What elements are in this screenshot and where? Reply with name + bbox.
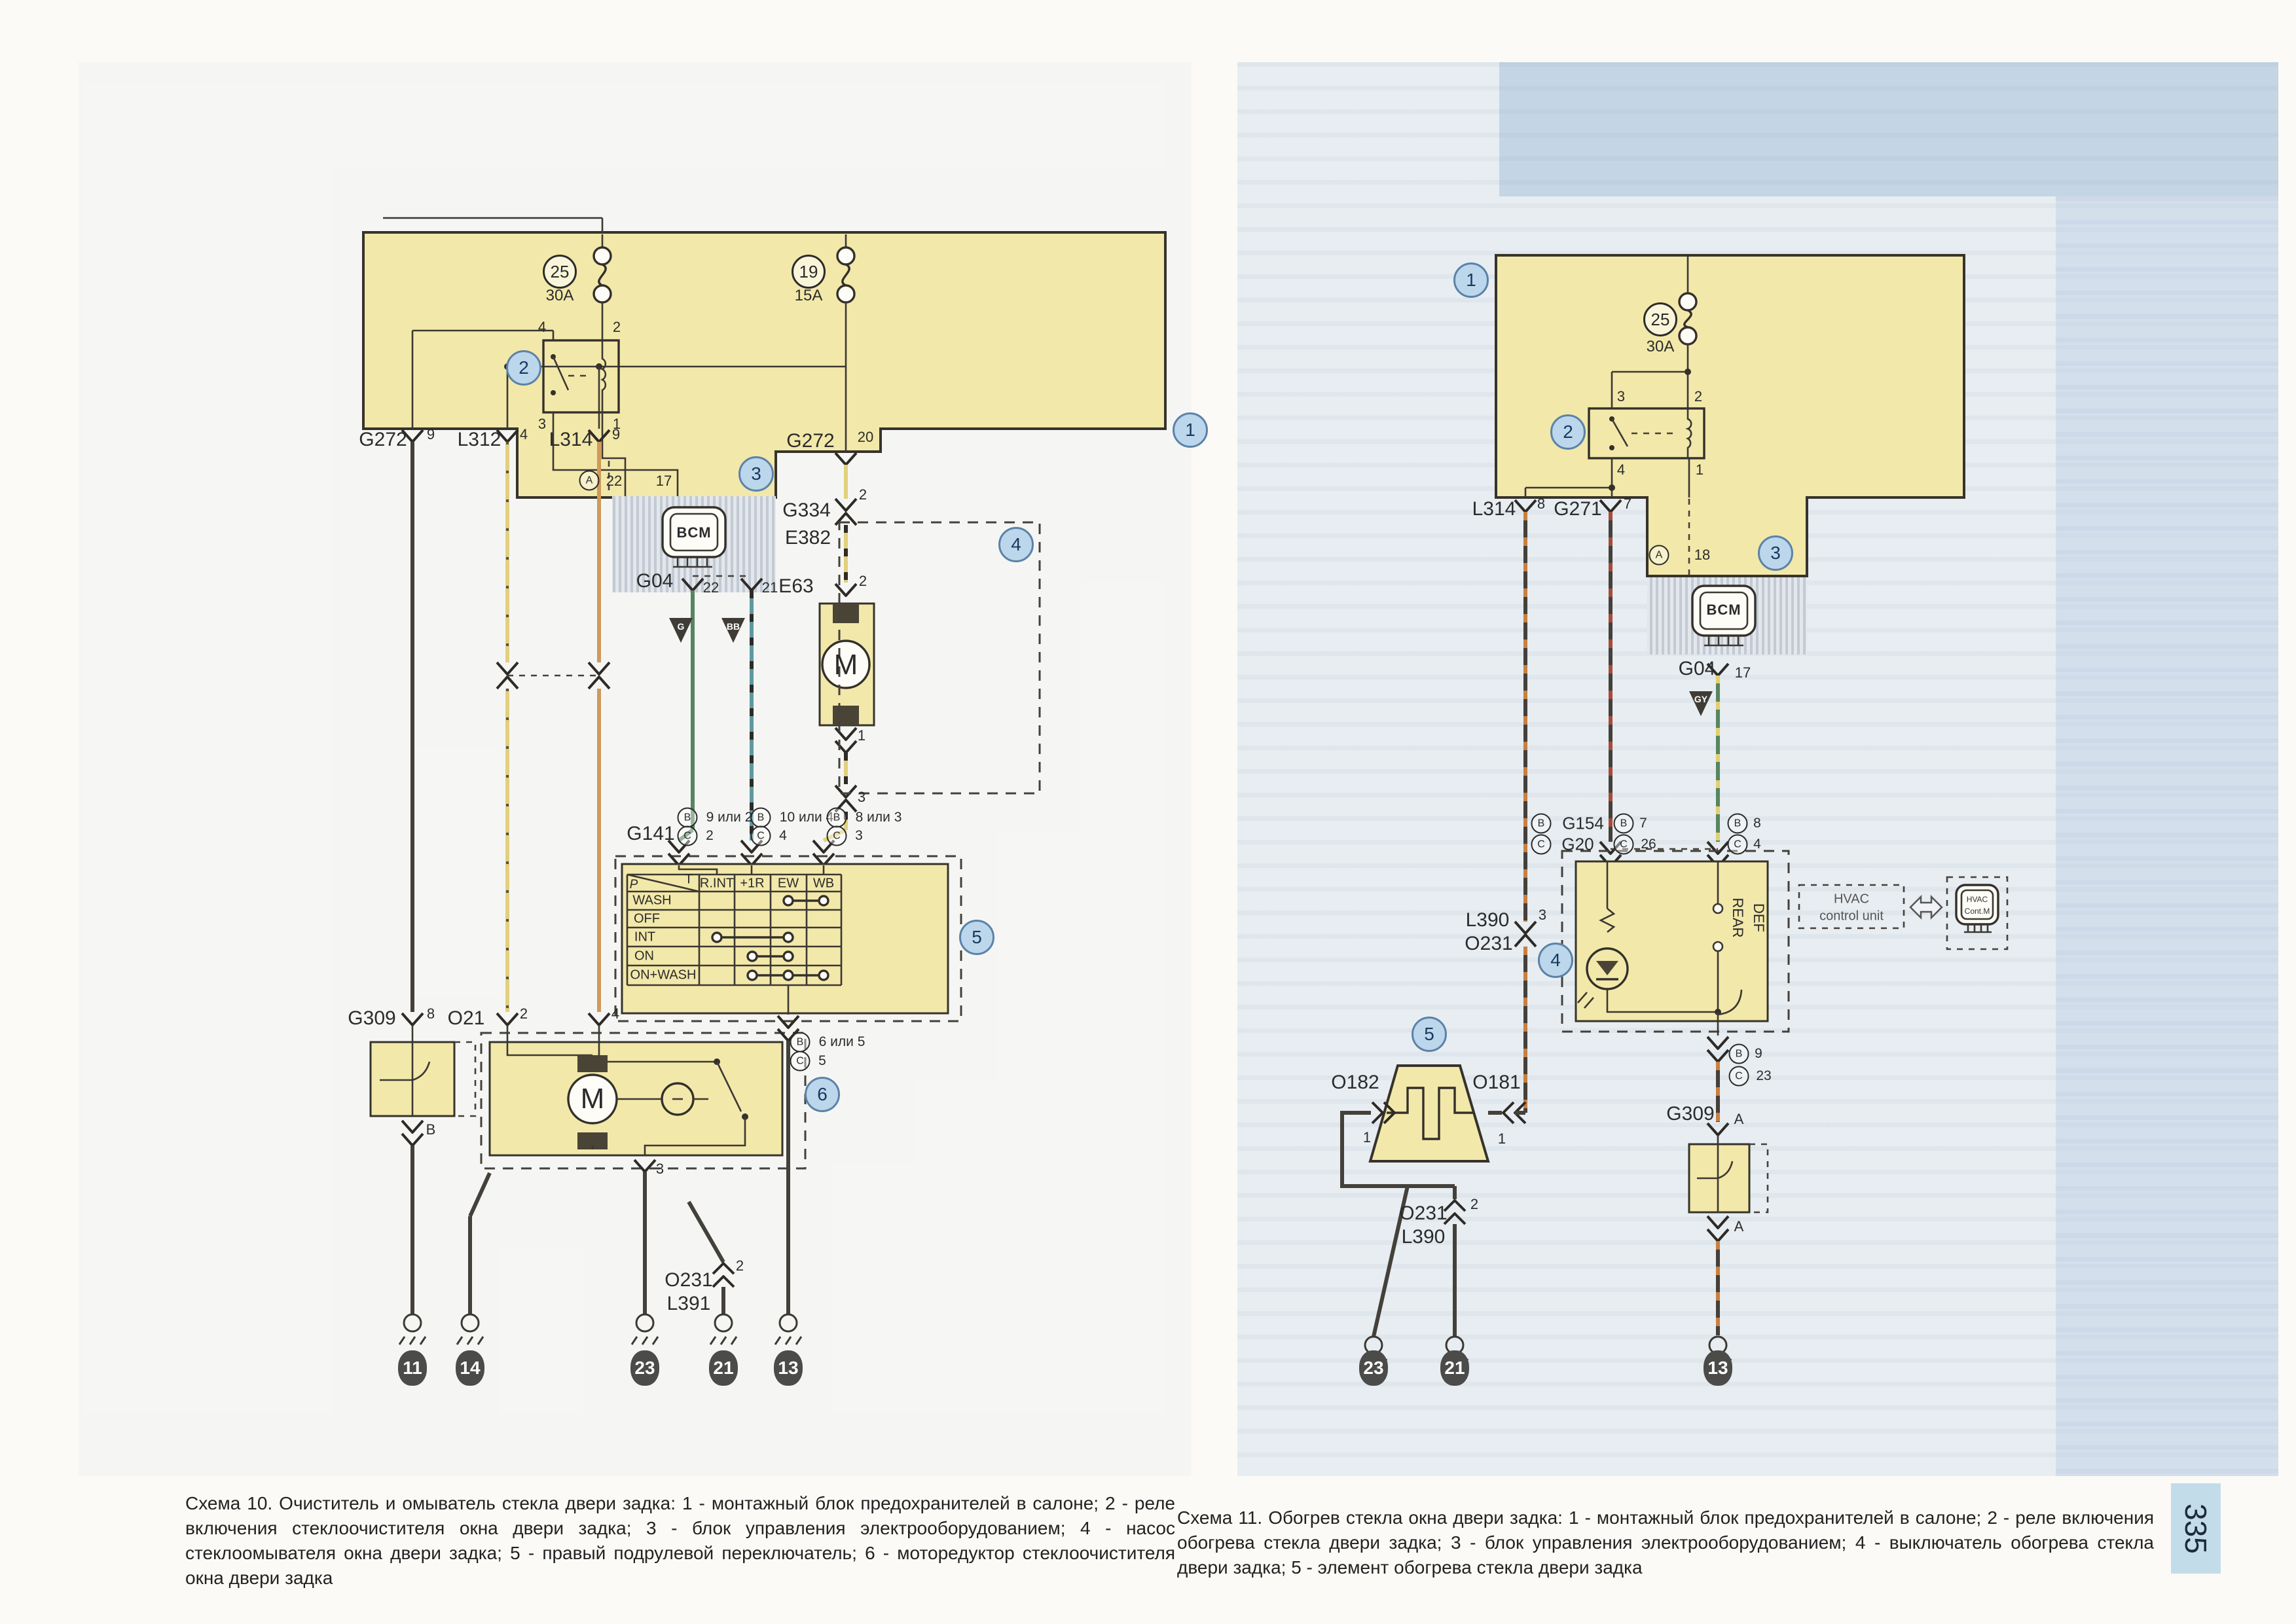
pin-label: A: [1734, 1111, 1744, 1128]
ground-number: 23: [630, 1350, 659, 1386]
pin-label: 10 или 4: [780, 810, 833, 825]
pin-label: 7: [1639, 816, 1647, 831]
switch-table-text: EW: [778, 876, 799, 892]
connector-letter: A: [579, 471, 600, 491]
component-number: 4: [998, 527, 1034, 562]
pin-label: 20: [858, 429, 873, 446]
connector-letter: A: [1649, 545, 1669, 566]
switch-table-text: P: [630, 878, 638, 892]
rear-def-label: DEF: [1750, 903, 1767, 932]
ground-number: 23: [1359, 1350, 1388, 1386]
connector-letter: C: [678, 826, 698, 846]
pin-label: A: [1734, 1218, 1744, 1235]
pin-label: 4: [779, 828, 787, 844]
connector-letter: C: [1729, 1066, 1749, 1087]
fuse-number: 25: [543, 255, 577, 289]
pin-label: 2: [1694, 388, 1702, 405]
ground-number: 14: [456, 1350, 484, 1386]
ground-symbols-left: [399, 1314, 801, 1344]
connector-label: O231: [1399, 1202, 1447, 1225]
pin-label: 2: [1470, 1196, 1478, 1213]
ground-number: 21: [709, 1350, 738, 1386]
connector-label: G04: [636, 570, 674, 592]
connector-label: E63: [778, 575, 813, 598]
pin-label: 8 или 3: [856, 810, 902, 825]
pin-label: 23: [1756, 1068, 1771, 1084]
component-number: 1: [1453, 262, 1489, 298]
pin-label: 21: [762, 579, 778, 596]
connector-label: L390: [1402, 1226, 1446, 1248]
connector-label: L390: [1466, 909, 1510, 931]
pin-label: 4: [520, 426, 528, 443]
connector-label: G272: [359, 429, 407, 451]
pin-label: 4: [1617, 461, 1625, 478]
pin-label: 3: [538, 416, 546, 433]
hvac-label: control unit: [1819, 909, 1884, 924]
pin-label: 4: [1753, 837, 1761, 852]
connector-label: O182: [1331, 1072, 1379, 1094]
connector-label: G272: [786, 430, 834, 452]
ground-number: 21: [1440, 1350, 1469, 1386]
pin-label: 9: [427, 426, 435, 443]
component-number: 1: [1173, 412, 1208, 448]
connector-letter: C: [827, 826, 847, 846]
ground-number: 11: [398, 1350, 427, 1386]
connector-label: L314: [549, 429, 593, 451]
connector-label: E382: [785, 527, 831, 549]
defogger-switch-block: [1576, 861, 1768, 1021]
switch-table-text: ON: [634, 949, 654, 964]
ground-number: 13: [1704, 1350, 1732, 1386]
pin-label: 8: [1753, 816, 1761, 831]
bcm-label: BCM: [1706, 602, 1741, 619]
wire-color-code: GY: [1694, 694, 1707, 704]
hvac-icon-label: Cont.M: [1965, 907, 1990, 916]
connector-label: G154: [1562, 814, 1604, 834]
pin-label: 3: [1617, 388, 1625, 405]
connector-label: G04: [1679, 658, 1716, 680]
connector-letter: B: [678, 808, 698, 828]
hvac-label: HVAC: [1834, 892, 1869, 907]
wire-color-code: G: [678, 621, 685, 632]
connector-label: O231: [665, 1269, 712, 1291]
component-number: 4: [1538, 943, 1573, 978]
bcm-label: BCM: [676, 524, 711, 541]
pin-label: 9: [1755, 1046, 1762, 1062]
connector-label: G309: [348, 1007, 395, 1030]
caption-scheme-11: Схема 11. Обогрев стекла окна двери задк…: [1177, 1506, 2154, 1580]
pin-label: 2: [736, 1257, 744, 1274]
connector-letter: B: [1614, 814, 1634, 834]
ground-number: 13: [774, 1350, 803, 1386]
switch-table-text: ON+WASH: [630, 968, 697, 983]
component-number: 6: [805, 1077, 840, 1112]
pin-label: 22: [606, 473, 622, 490]
connector-label: O231: [1465, 933, 1512, 955]
connector-label: G334: [782, 499, 830, 522]
switch-table-text: +1R: [740, 876, 764, 892]
pin-label: 9: [612, 426, 620, 443]
wiring-diagram-canvas: [0, 0, 2296, 1624]
connector-label: L312: [458, 429, 501, 451]
pin-label: 18: [1694, 547, 1710, 564]
fuse-number: 19: [792, 255, 826, 289]
pin-label: 17: [1735, 664, 1751, 681]
component-number: 5: [1412, 1017, 1447, 1052]
pin-label: 1: [1498, 1130, 1506, 1147]
pin-label: 9 или 2: [706, 810, 753, 825]
pin-label: 1: [1363, 1129, 1371, 1146]
fuse-rating: 30A: [546, 287, 574, 305]
pin-label: 17: [656, 473, 672, 490]
connector-letter: C: [790, 1051, 811, 1072]
connector-label: L391: [667, 1293, 711, 1315]
pin-label: 2: [859, 573, 867, 590]
connector-label: G309: [1666, 1103, 1714, 1125]
switch-table-text: R.INT: [700, 876, 734, 892]
connector-letter: B: [827, 808, 847, 828]
connector-label: G141: [627, 823, 674, 845]
connector-letter: B: [1729, 1044, 1749, 1064]
manual-page: 2530A1915A2134564231G2729L3124L3149G2722…: [0, 0, 2296, 1624]
pin-label: 1: [1696, 461, 1704, 478]
pin-label: 8: [1537, 496, 1545, 513]
pin-label: 6 или 5: [819, 1034, 866, 1050]
rear-def-label: REAR: [1729, 897, 1746, 937]
pin-label: 22: [703, 579, 719, 596]
wire-color-code: BB: [727, 621, 740, 632]
component-number: 3: [738, 456, 774, 492]
connector-letter: B: [790, 1032, 811, 1053]
connector-label: G20: [1561, 835, 1594, 855]
pin-label: 2: [859, 486, 867, 503]
connector-letter: C: [1531, 835, 1552, 855]
pin-label: 1: [858, 727, 866, 744]
switch-table-text: T: [685, 873, 693, 888]
connector-letter: B: [1728, 814, 1748, 834]
pin-label: 4: [611, 1005, 619, 1022]
connector-letter: C: [1728, 835, 1748, 855]
motor-letter: M: [581, 1083, 605, 1115]
pin-label: 3: [855, 828, 863, 844]
pin-label: 5: [818, 1053, 826, 1069]
connector-label: O181: [1472, 1072, 1520, 1094]
switch-table-text: WB: [813, 876, 834, 892]
component-number: 2: [506, 350, 541, 386]
page-number: 335: [2178, 1504, 2214, 1554]
fuse-rating: 30A: [1647, 338, 1675, 356]
pin-label: 3: [656, 1161, 664, 1178]
connector-letter: B: [751, 808, 771, 828]
hvac-icon-label: HVAC: [1967, 895, 1988, 904]
link-arrow-icon: [1910, 897, 1942, 918]
connector-letter: C: [751, 826, 771, 846]
pin-label: B: [426, 1121, 436, 1138]
pin-label: 8: [427, 1005, 435, 1022]
component-number: 3: [1758, 535, 1793, 571]
component-number: 2: [1550, 414, 1586, 450]
connector-label: O21: [448, 1007, 485, 1030]
switch-table-text: OFF: [634, 912, 660, 927]
connector-letter: B: [1531, 814, 1552, 834]
pin-label: 2: [520, 1005, 528, 1022]
pin-label: 2: [613, 319, 621, 336]
pin-label: 3: [1539, 907, 1546, 924]
connector-letter: C: [1614, 835, 1634, 855]
fuse-number: 25: [1643, 302, 1677, 336]
pin-label: 26: [1641, 837, 1656, 852]
pin-label: 3: [858, 789, 866, 806]
connector-label: G271: [1554, 498, 1601, 520]
switch-table-text: INT: [634, 930, 655, 945]
connector-label: L314: [1472, 498, 1516, 520]
pin-label: 4: [538, 319, 546, 336]
motor-letter: M: [834, 649, 858, 681]
page-number-tab: 335: [2171, 1483, 2221, 1574]
fuse-rating: 15A: [795, 287, 823, 305]
component-number: 5: [959, 920, 994, 955]
ground-symbols-right: [1360, 1337, 1731, 1367]
pin-label: 2: [706, 828, 714, 844]
caption-scheme-10: Схема 10. Очиститель и омыватель стекла …: [185, 1491, 1175, 1591]
switch-table-text: WASH: [632, 893, 671, 909]
pin-label: 7: [1624, 496, 1631, 513]
